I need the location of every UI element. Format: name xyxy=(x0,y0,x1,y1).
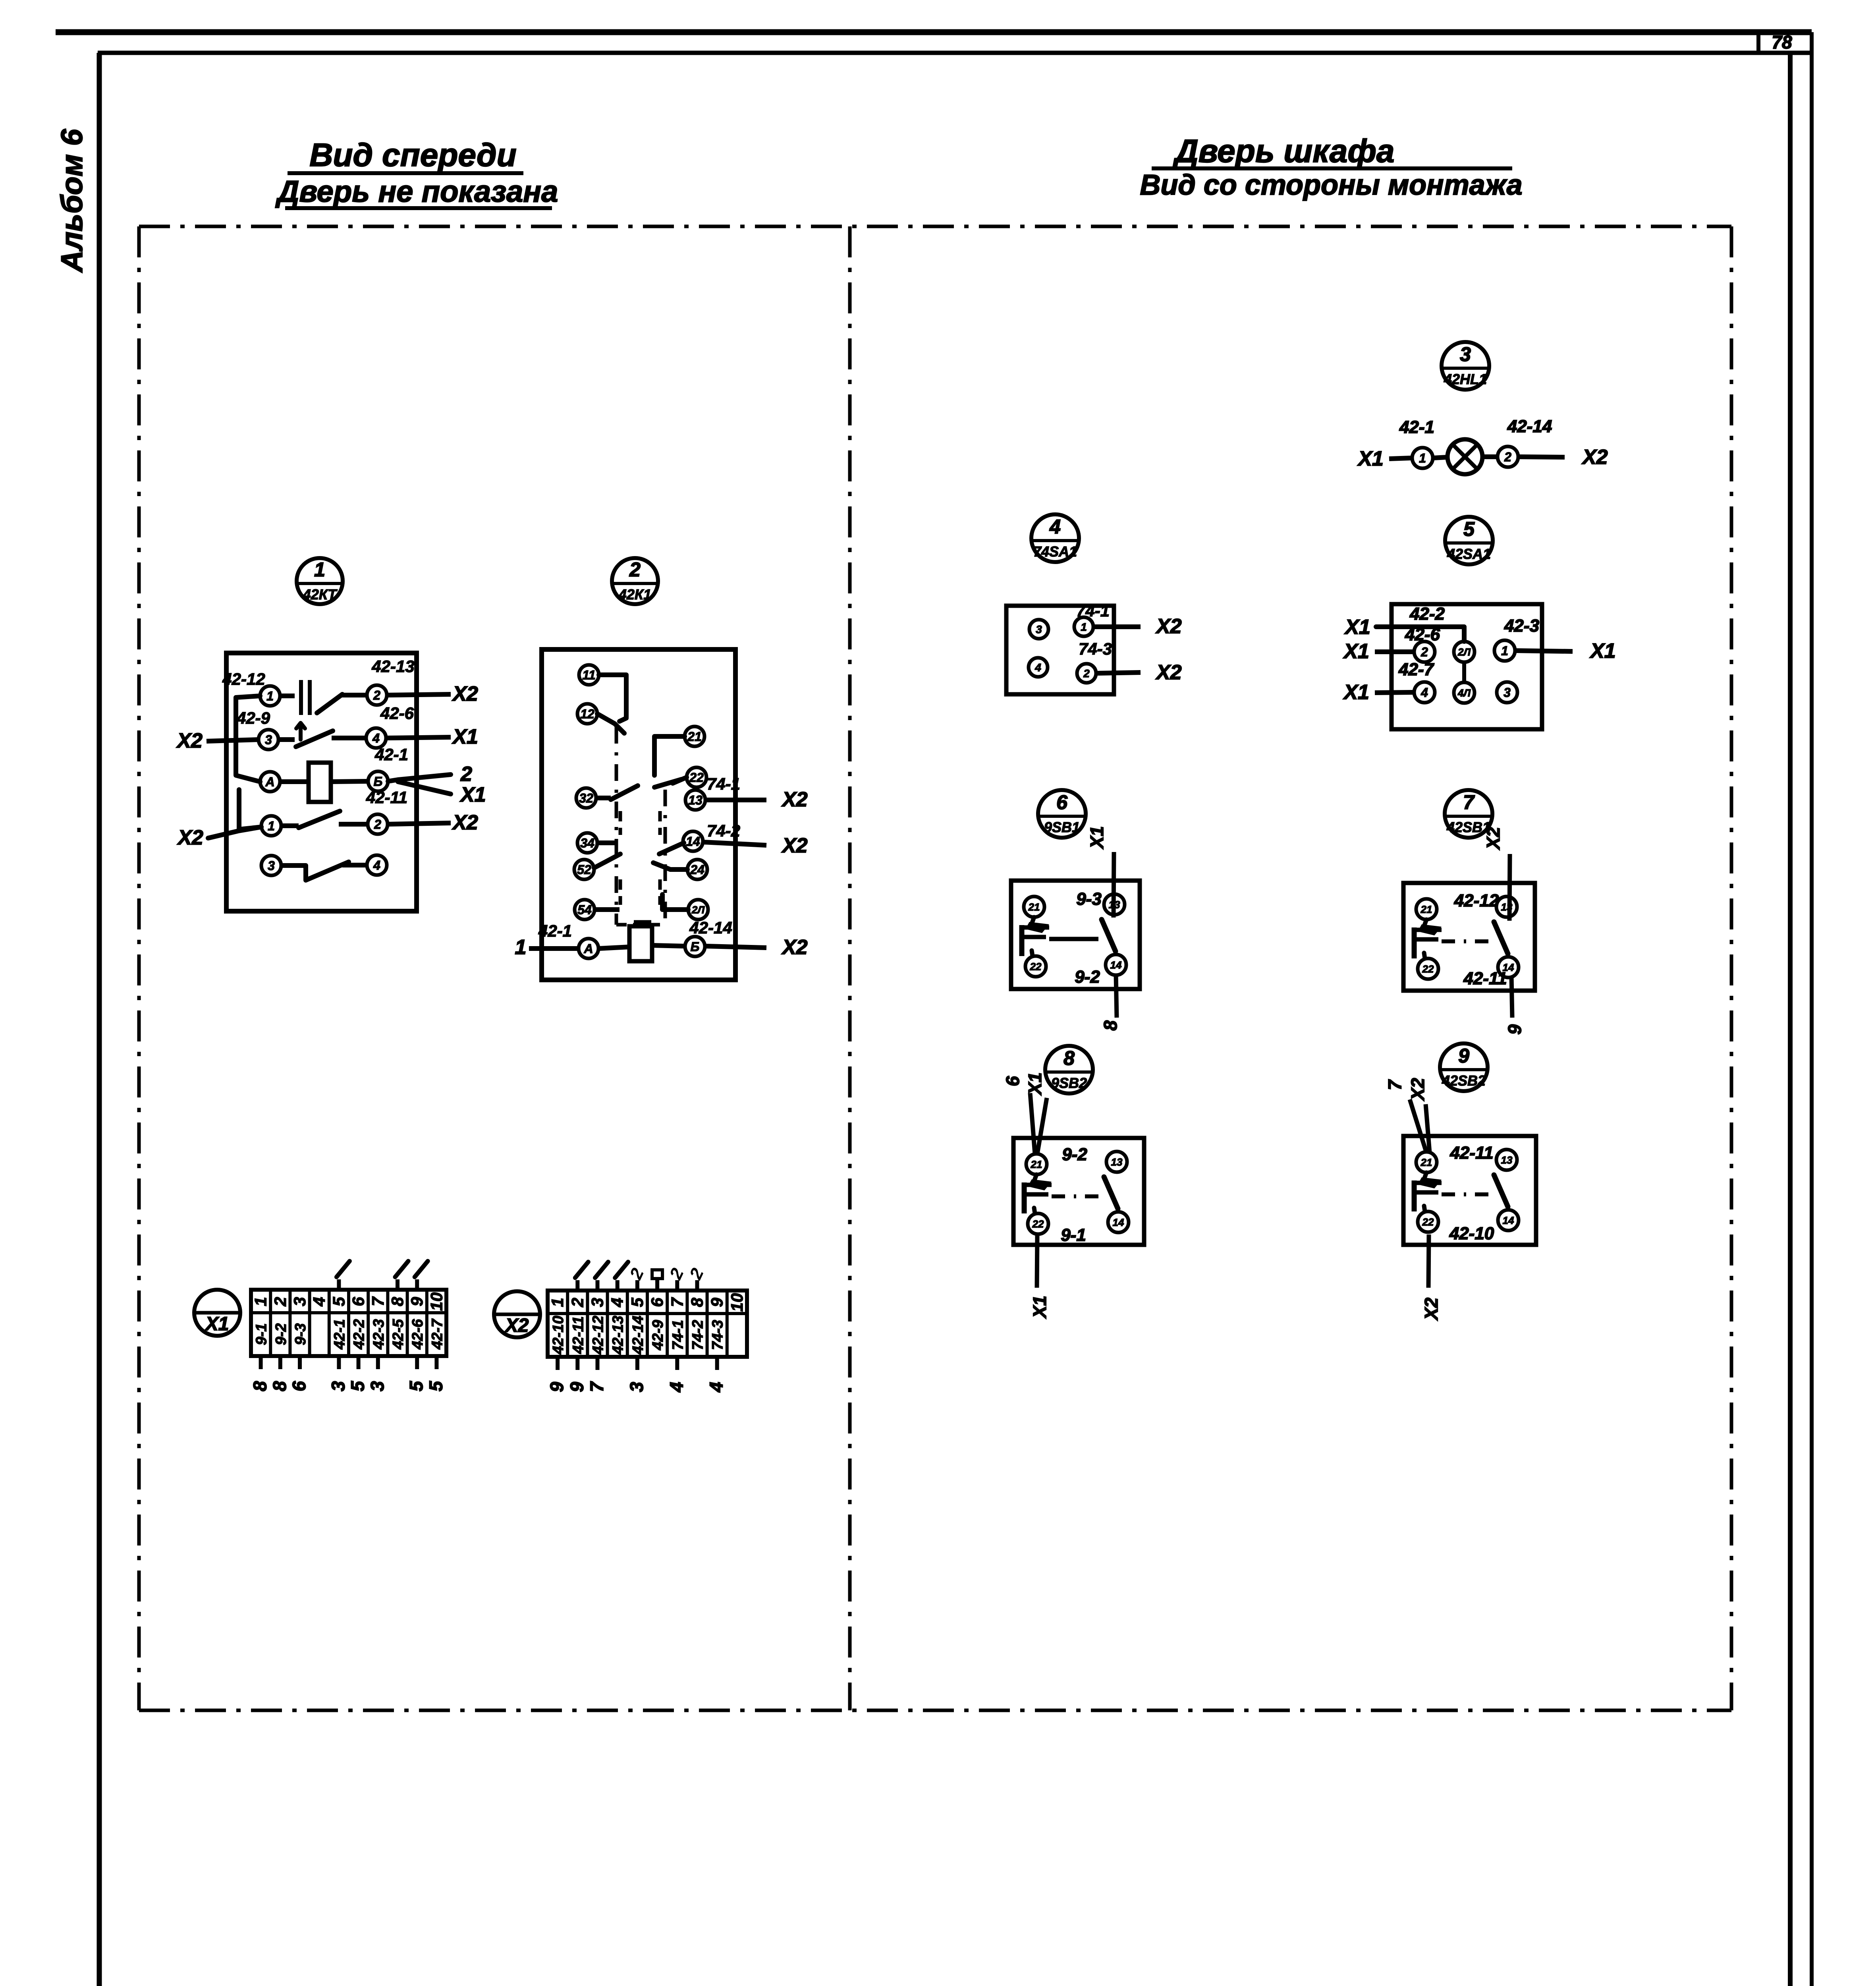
svg-text:Х1: Х1 xyxy=(1589,639,1616,663)
svg-text:42-9: 42-9 xyxy=(236,709,270,727)
svg-text:9-2: 9-2 xyxy=(273,1323,290,1345)
svg-text:9: 9 xyxy=(566,1382,587,1392)
svg-text:9: 9 xyxy=(546,1382,567,1392)
svg-text:42КТ: 42КТ xyxy=(303,586,338,603)
svg-text:Вид со стороны монтажа: Вид со стороны монтажа xyxy=(1140,169,1522,201)
svg-text:Х2: Х2 xyxy=(452,811,478,834)
svg-text:42-7: 42-7 xyxy=(1398,660,1435,679)
svg-text:42-3: 42-3 xyxy=(371,1319,387,1350)
svg-text:8: 8 xyxy=(1063,1047,1075,1069)
svg-text:Х2: Х2 xyxy=(1155,615,1182,638)
svg-text:Х2: Х2 xyxy=(1155,661,1182,684)
svg-text:Х2: Х2 xyxy=(177,826,203,849)
svg-text:4: 4 xyxy=(1035,661,1041,674)
svg-text:Х1: Х1 xyxy=(1087,826,1107,850)
svg-text:21: 21 xyxy=(1421,1156,1432,1168)
svg-text:42-11: 42-11 xyxy=(1463,969,1507,988)
svg-text:22: 22 xyxy=(689,771,704,785)
svg-text:Х1: Х1 xyxy=(452,725,478,748)
svg-text:42SA1: 42SA1 xyxy=(1447,546,1491,562)
svg-text:6: 6 xyxy=(289,1381,309,1391)
svg-text:2: 2 xyxy=(374,817,381,832)
svg-text:9: 9 xyxy=(1458,1045,1469,1067)
svg-text:22: 22 xyxy=(1422,963,1434,975)
svg-text:42-1: 42-1 xyxy=(538,922,572,940)
svg-text:42-1: 42-1 xyxy=(1399,417,1434,437)
svg-text:32: 32 xyxy=(579,791,593,806)
svg-text:4: 4 xyxy=(666,1382,687,1393)
svg-text:7: 7 xyxy=(587,1381,607,1392)
svg-text:Х1: Х1 xyxy=(205,1314,229,1335)
svg-text:1: 1 xyxy=(314,558,325,581)
svg-text:3: 3 xyxy=(1036,623,1042,636)
svg-text:Х2: Х2 xyxy=(504,1315,529,1336)
svg-text:1: 1 xyxy=(268,819,275,833)
svg-text:4: 4 xyxy=(608,1298,627,1307)
svg-text:5: 5 xyxy=(628,1298,647,1307)
svg-text:42SВ2: 42SВ2 xyxy=(1442,1072,1486,1089)
svg-text:42HL1: 42HL1 xyxy=(1444,371,1487,387)
svg-text:4Л: 4Л xyxy=(1457,687,1471,699)
svg-text:7: 7 xyxy=(668,1297,686,1307)
svg-text:42-9: 42-9 xyxy=(650,1320,666,1350)
svg-text:Х2: Х2 xyxy=(781,936,808,959)
svg-text:52: 52 xyxy=(577,863,591,877)
svg-text:21: 21 xyxy=(1031,1158,1042,1170)
svg-text:13: 13 xyxy=(688,793,703,808)
svg-text:42-14: 42-14 xyxy=(630,1316,647,1354)
svg-text:7: 7 xyxy=(369,1296,387,1306)
svg-text:74-1: 74-1 xyxy=(1076,601,1110,620)
svg-text:74-3: 74-3 xyxy=(710,1320,726,1350)
svg-text:42-12: 42-12 xyxy=(1454,891,1499,910)
svg-text:42-1: 42-1 xyxy=(331,1319,348,1350)
svg-text:42-12: 42-12 xyxy=(590,1316,607,1354)
svg-text:22: 22 xyxy=(1030,960,1042,972)
svg-text:3: 3 xyxy=(626,1382,647,1392)
svg-text:11: 11 xyxy=(582,668,595,682)
svg-text:13: 13 xyxy=(1501,1154,1513,1166)
svg-text:7: 7 xyxy=(1463,791,1475,813)
svg-text:42-6: 42-6 xyxy=(409,1319,426,1350)
svg-text:1: 1 xyxy=(251,1297,270,1306)
svg-text:Дверь шкафа: Дверь шкафа xyxy=(1172,133,1394,169)
svg-text:Альбом 6: Альбом 6 xyxy=(55,129,89,273)
svg-text:2: 2 xyxy=(271,1297,290,1306)
svg-text:Х2: Х2 xyxy=(1407,1078,1428,1101)
svg-text:2: 2 xyxy=(568,1298,587,1307)
svg-text:42-7: 42-7 xyxy=(429,1318,446,1350)
svg-text:2: 2 xyxy=(373,688,380,703)
svg-text:9-2: 9-2 xyxy=(1062,1145,1087,1164)
svg-text:14: 14 xyxy=(1110,959,1122,971)
svg-text:9-2: 9-2 xyxy=(1075,967,1100,987)
svg-text:22: 22 xyxy=(1032,1218,1044,1230)
svg-text:42-3: 42-3 xyxy=(1504,616,1539,636)
svg-text:78: 78 xyxy=(1772,32,1792,52)
svg-text:42-11: 42-11 xyxy=(570,1316,587,1354)
svg-text:4: 4 xyxy=(373,858,380,873)
svg-text:42-2: 42-2 xyxy=(1409,604,1445,624)
svg-text:42-2: 42-2 xyxy=(351,1319,368,1350)
svg-text:Х2: Х2 xyxy=(781,788,808,811)
svg-text:22: 22 xyxy=(1422,1216,1434,1228)
svg-text:42-5: 42-5 xyxy=(390,1319,407,1350)
svg-text:4: 4 xyxy=(1049,516,1061,538)
svg-text:42-14: 42-14 xyxy=(1507,417,1552,436)
svg-text:Х1: Х1 xyxy=(1343,681,1369,704)
svg-text:Х1: Х1 xyxy=(1357,447,1384,470)
svg-text:Х2: Х2 xyxy=(176,729,203,752)
svg-text:2: 2 xyxy=(460,763,472,786)
svg-text:10: 10 xyxy=(728,1293,746,1312)
svg-text:9-3: 9-3 xyxy=(292,1323,309,1345)
svg-text:54: 54 xyxy=(577,903,592,917)
svg-text:8: 8 xyxy=(1100,1020,1121,1031)
svg-text:2: 2 xyxy=(1504,450,1511,464)
svg-text:74SA1: 74SA1 xyxy=(1033,543,1077,560)
svg-text:2: 2 xyxy=(629,558,641,581)
svg-text:42К1: 42К1 xyxy=(618,586,651,603)
svg-text:Б: Б xyxy=(374,775,383,789)
svg-text:34: 34 xyxy=(580,836,594,850)
svg-text:42-10: 42-10 xyxy=(1449,1224,1494,1243)
svg-text:Х1: Х1 xyxy=(459,783,486,806)
svg-text:1: 1 xyxy=(1501,644,1508,658)
svg-text:42-14: 42-14 xyxy=(689,918,732,937)
svg-text:Вид спереди: Вид спереди xyxy=(309,137,517,173)
svg-text:5: 5 xyxy=(425,1381,446,1391)
svg-text:8: 8 xyxy=(688,1298,706,1307)
svg-text:4: 4 xyxy=(372,731,380,746)
svg-text:12: 12 xyxy=(580,707,594,721)
svg-text:3: 3 xyxy=(588,1298,607,1307)
svg-text:5: 5 xyxy=(1463,518,1475,540)
svg-text:42-13: 42-13 xyxy=(610,1316,627,1354)
svg-text:42-11: 42-11 xyxy=(1449,1143,1493,1163)
svg-text:2: 2 xyxy=(1083,667,1090,680)
svg-text:6: 6 xyxy=(1056,791,1068,813)
svg-text:А: А xyxy=(583,942,593,956)
svg-text:1: 1 xyxy=(515,936,527,959)
svg-text:9SВ2: 9SВ2 xyxy=(1051,1075,1087,1091)
svg-text:14: 14 xyxy=(1113,1216,1124,1228)
svg-text:Х2: Х2 xyxy=(1421,1297,1442,1321)
svg-text:21: 21 xyxy=(1421,903,1432,915)
svg-text:Х2: Х2 xyxy=(452,682,478,705)
svg-text:8: 8 xyxy=(269,1381,290,1391)
svg-text:4: 4 xyxy=(1421,686,1428,700)
svg-text:14: 14 xyxy=(686,835,700,849)
svg-text:Б: Б xyxy=(691,940,700,954)
svg-text:4: 4 xyxy=(706,1382,727,1393)
svg-text:1: 1 xyxy=(266,689,274,703)
svg-text:4: 4 xyxy=(310,1297,328,1306)
svg-text:Дверь не показана: Дверь не показана xyxy=(275,175,558,209)
svg-text:3: 3 xyxy=(1504,686,1511,700)
svg-text:3: 3 xyxy=(265,733,272,747)
svg-text:42-6: 42-6 xyxy=(380,704,414,723)
svg-text:3: 3 xyxy=(367,1381,388,1391)
svg-text:Х2: Х2 xyxy=(1483,827,1504,850)
svg-text:14: 14 xyxy=(1503,1214,1514,1226)
svg-text:21: 21 xyxy=(1028,901,1040,913)
svg-text:74-2: 74-2 xyxy=(690,1320,706,1350)
svg-text:1: 1 xyxy=(1419,451,1426,466)
svg-text:8: 8 xyxy=(250,1381,270,1391)
svg-text:Х1: Х1 xyxy=(1344,616,1370,639)
svg-text:74-3: 74-3 xyxy=(1079,639,1112,658)
svg-text:42-1: 42-1 xyxy=(374,745,408,764)
svg-text:74-2: 74-2 xyxy=(707,821,740,840)
svg-text:1: 1 xyxy=(548,1298,567,1307)
svg-text:6: 6 xyxy=(349,1297,368,1306)
svg-text:9-3: 9-3 xyxy=(1076,889,1102,909)
svg-text:6: 6 xyxy=(1002,1076,1023,1086)
svg-text:5: 5 xyxy=(406,1381,427,1391)
svg-text:5: 5 xyxy=(347,1381,368,1391)
svg-text:42-6: 42-6 xyxy=(1405,625,1440,644)
svg-text:9: 9 xyxy=(708,1298,726,1307)
svg-text:13: 13 xyxy=(1111,1156,1123,1168)
svg-text:2Л: 2Л xyxy=(691,904,705,916)
svg-text:21: 21 xyxy=(687,730,702,744)
svg-text:42-10: 42-10 xyxy=(550,1316,567,1354)
svg-text:24: 24 xyxy=(690,863,704,877)
svg-text:3: 3 xyxy=(1460,343,1471,365)
svg-text:Х2: Х2 xyxy=(1581,446,1608,469)
svg-text:2: 2 xyxy=(1421,645,1428,659)
svg-text:42-13: 42-13 xyxy=(371,657,414,676)
svg-text:42-12: 42-12 xyxy=(222,670,265,688)
svg-text:6: 6 xyxy=(648,1298,666,1307)
svg-text:10: 10 xyxy=(427,1292,446,1311)
svg-text:3: 3 xyxy=(290,1297,309,1306)
svg-text:2Л: 2Л xyxy=(1457,646,1471,658)
svg-text:8: 8 xyxy=(388,1297,407,1306)
svg-text:А: А xyxy=(265,775,274,789)
svg-text:74-1: 74-1 xyxy=(707,775,740,793)
svg-text:Х1: Х1 xyxy=(1343,640,1369,663)
svg-text:9SВ1: 9SВ1 xyxy=(1044,819,1080,835)
svg-text:74-1: 74-1 xyxy=(670,1320,686,1350)
svg-text:Х1: Х1 xyxy=(1029,1296,1050,1319)
svg-text:9: 9 xyxy=(407,1297,426,1306)
svg-text:9: 9 xyxy=(1504,1024,1525,1035)
svg-text:1: 1 xyxy=(1081,621,1087,633)
svg-text:7: 7 xyxy=(1384,1079,1405,1090)
svg-text:Х2: Х2 xyxy=(781,834,808,857)
svg-text:Х1: Х1 xyxy=(1025,1072,1045,1096)
svg-text:9-1: 9-1 xyxy=(253,1323,270,1345)
svg-text:42-11: 42-11 xyxy=(366,788,407,807)
svg-text:5: 5 xyxy=(329,1297,348,1306)
svg-text:3: 3 xyxy=(328,1381,348,1391)
svg-text:3: 3 xyxy=(268,859,275,873)
svg-text:9-1: 9-1 xyxy=(1061,1225,1086,1245)
